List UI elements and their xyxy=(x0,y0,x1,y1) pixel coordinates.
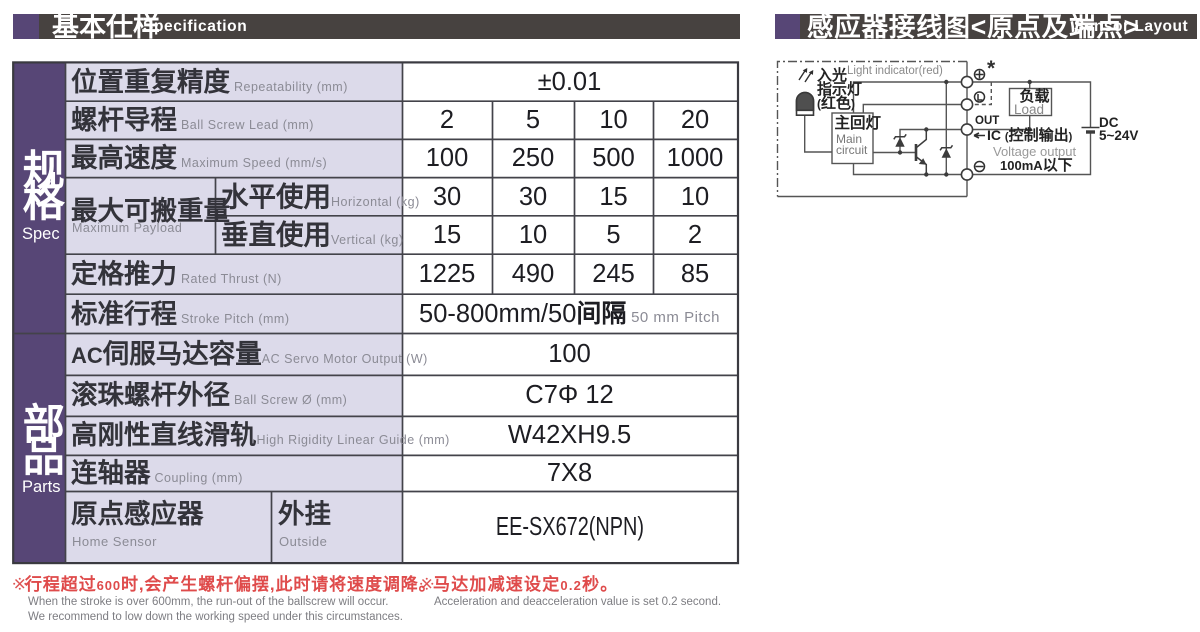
svg-text:*: * xyxy=(987,57,996,80)
